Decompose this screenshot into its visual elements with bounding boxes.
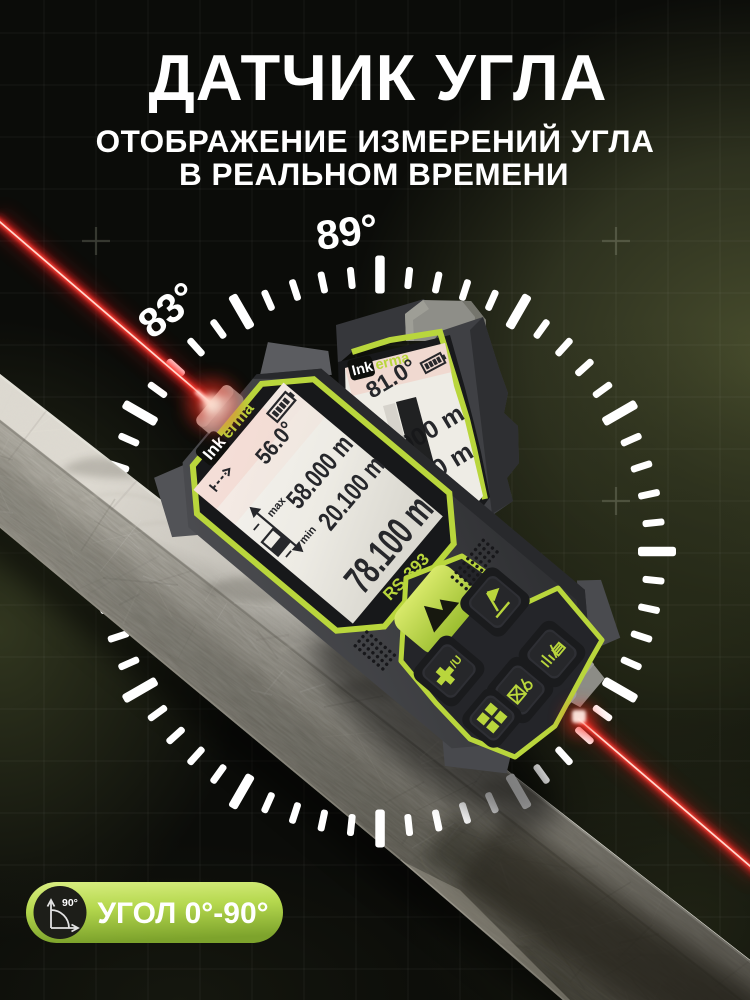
svg-text:89°: 89° (313, 205, 381, 259)
svg-text:90°: 90° (62, 897, 78, 909)
svg-text:ДАТЧИК УГЛА: ДАТЧИК УГЛА (148, 41, 607, 114)
svg-text:В РЕАЛЬНОМ ВРЕМЕНИ: В РЕАЛЬНОМ ВРЕМЕНИ (179, 156, 569, 192)
svg-text:УГОЛ 0°-90°: УГОЛ 0°-90° (97, 897, 268, 930)
svg-text:ОТОБРАЖЕНИЕ ИЗМЕРЕНИЙ УГЛА: ОТОБРАЖЕНИЕ ИЗМЕРЕНИЙ УГЛА (96, 123, 655, 159)
